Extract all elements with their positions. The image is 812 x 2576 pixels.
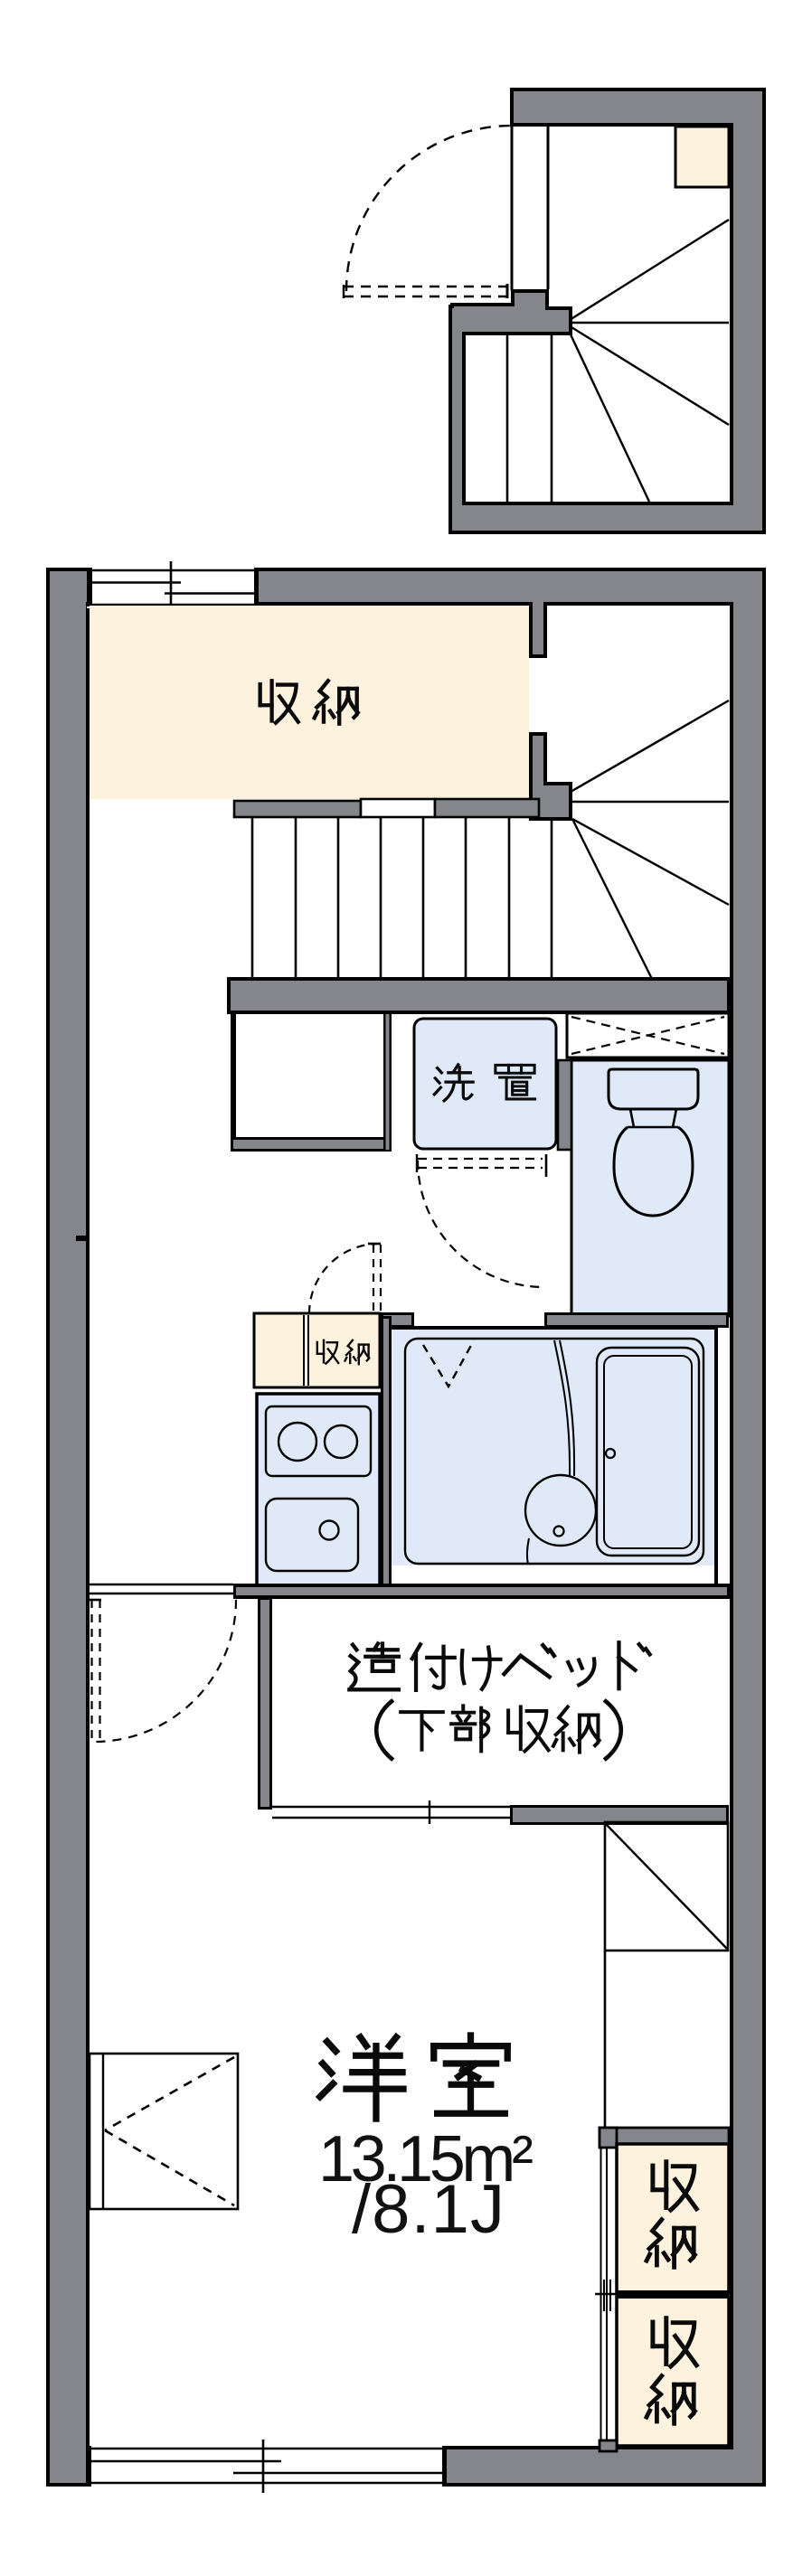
svg-text:/8.1J: /8.1J (352, 2171, 505, 2248)
